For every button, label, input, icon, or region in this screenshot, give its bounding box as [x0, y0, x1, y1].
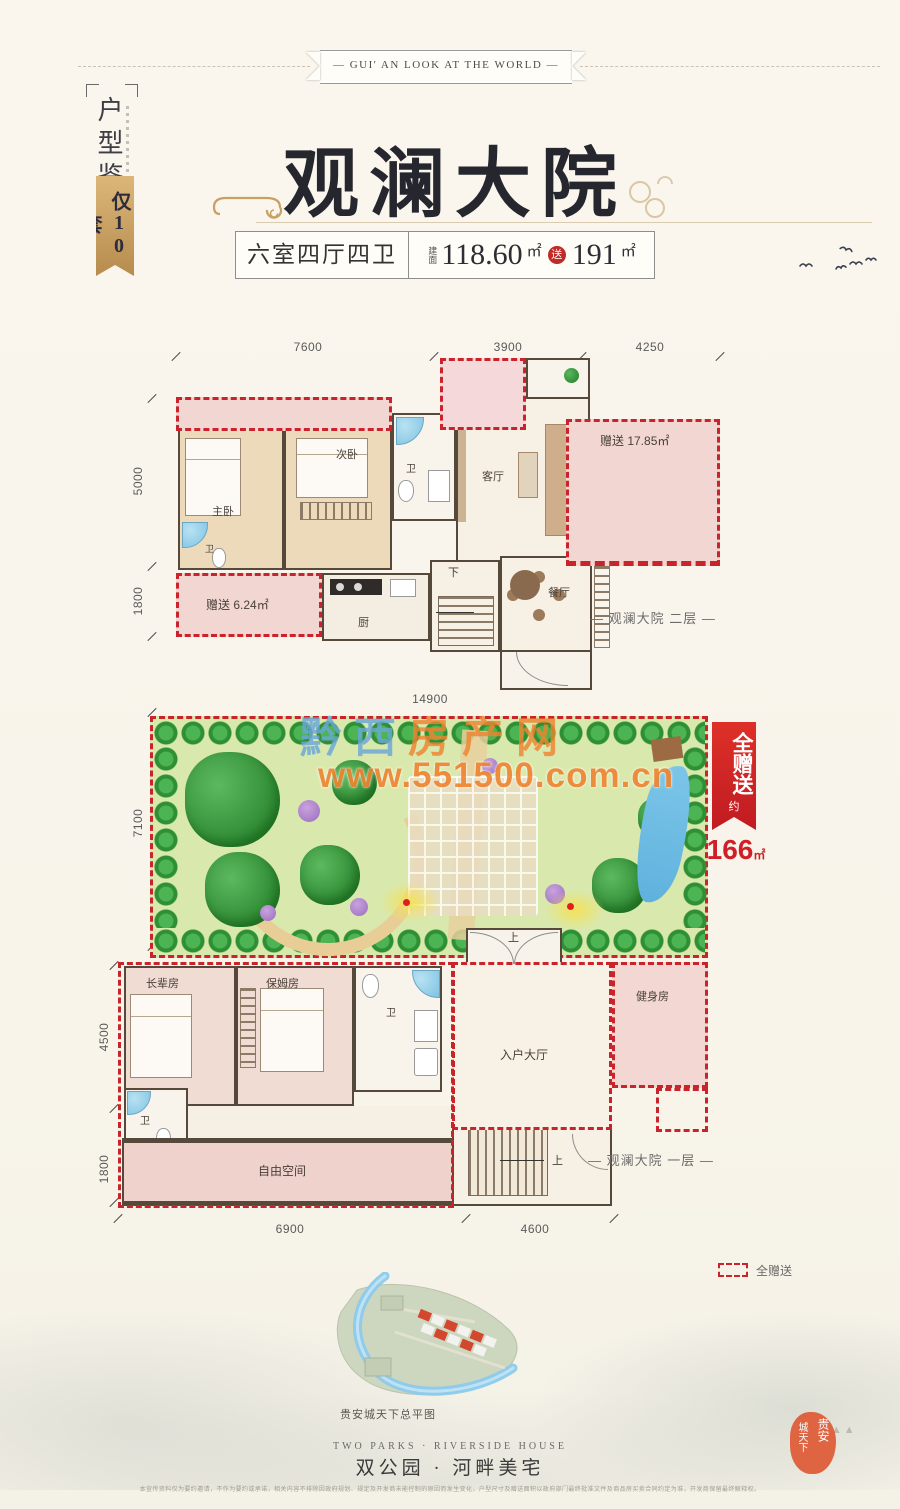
room-label-gym: 健身房: [636, 988, 669, 1004]
page-title: 观澜大院: [270, 122, 640, 232]
tree-cluster: [185, 752, 280, 847]
room-label-second: 次卧: [336, 446, 358, 462]
room-label-bath-b: 卫: [205, 542, 214, 555]
area-line: 建面 118.60 ㎡ 送 191 ㎡: [409, 238, 654, 272]
full-gift-ribbon: 全赠送 约: [712, 722, 756, 830]
floor2-balcony-gift: [440, 358, 526, 430]
room-label-nanny: 保姆房: [266, 975, 299, 991]
legend-gift-label: 全赠送: [756, 1262, 792, 1279]
area-value: 118.60: [441, 238, 522, 272]
gift-circle-icon: 送: [548, 246, 566, 264]
limited-badge: 仅10套: [96, 176, 134, 276]
seal-text-left: 城天下: [796, 1422, 807, 1452]
dim-4600: 4600: [495, 1222, 575, 1236]
stairs-up-label: 上: [552, 1152, 563, 1168]
stairs-label-down: 下: [448, 564, 459, 580]
sink-icon: [390, 579, 416, 597]
garden-tree-row-bottom: [153, 928, 705, 954]
sink-icon: [428, 470, 450, 502]
dim-5000: 5000: [131, 459, 145, 503]
banner-text: — GUI' AN LOOK AT THE WORLD —: [320, 59, 572, 71]
coffee-table-icon: [518, 452, 538, 498]
floor1-gift-step: [656, 1088, 708, 1132]
dim-1800-f2: 1800: [131, 579, 145, 623]
gift-area-value: 191: [572, 238, 617, 272]
gift-label-left: 赠送 6.24㎡: [206, 596, 269, 613]
floor1-gym: [612, 962, 708, 1088]
room-label-master: 主卧: [212, 503, 234, 519]
floor2-dining: [500, 556, 592, 652]
area-label: 建面: [427, 246, 437, 264]
full-gift-value-line: 166㎡: [706, 834, 766, 866]
room-label-kitchen: 厨: [358, 614, 369, 630]
cloud-ornament-icon: [624, 172, 676, 220]
flower-bed: [380, 882, 440, 922]
plant-icon: [564, 368, 579, 383]
toilet-icon: [212, 548, 226, 568]
dim-4500: 4500: [97, 1015, 111, 1059]
room-label-bath2: 卫: [140, 1112, 150, 1127]
room-label-hall: 入户大厅: [500, 1046, 548, 1063]
dim-6900: 6900: [250, 1222, 330, 1236]
tv-wall: [458, 430, 466, 522]
slogan-cn: 双公园 · 河畔美宅: [270, 1453, 630, 1480]
dim-1800-f1: 1800: [97, 1147, 111, 1191]
flower-bed: [545, 890, 605, 930]
ribbon-tail-right: [572, 52, 586, 80]
floor2-gift-bay: [176, 397, 392, 431]
banner-dash-left: [78, 66, 310, 67]
room-label-elder: 长辈房: [146, 975, 179, 991]
room-label-free: 自由空间: [258, 1162, 306, 1179]
room-label-dining: 餐厅: [548, 584, 570, 600]
full-gift-approx: 约: [712, 798, 756, 814]
stair-treads: [468, 1128, 548, 1196]
toilet-icon: [398, 480, 414, 502]
site-plan-map: [325, 1272, 540, 1422]
spec-box: 六室四厅四卫 建面 118.60 ㎡ 送 191 ㎡: [235, 231, 655, 279]
poster-root: — GUI' AN LOOK AT THE WORLD — 户型鉴赏 仅10套 …: [0, 0, 900, 1509]
watermark-url: www.551500.com.cn: [318, 756, 674, 796]
title-underline: [256, 222, 872, 223]
room-spec: 六室四厅四卫: [236, 232, 409, 278]
floor1-caption: — 观澜大院 一层 —: [588, 1150, 728, 1169]
stairs-up-label-entry: 上: [508, 929, 519, 945]
stove-icon: [330, 579, 382, 595]
slogan-en: TWO PARKS · RIVERSIDE HOUSE: [270, 1441, 630, 1452]
dim-7100: 7100: [131, 801, 145, 845]
full-gift-unit: ㎡: [753, 848, 765, 862]
brand-seal: 贵安 城天下: [790, 1412, 836, 1474]
birds-icon: [792, 238, 884, 284]
flower-dot: [567, 903, 574, 910]
full-gift-value: 166: [707, 834, 754, 865]
site-plan-caption: 贵安城天下总平图: [340, 1406, 436, 1422]
dim-7600: 7600: [268, 340, 348, 354]
garden-tree-col-left: [153, 746, 179, 928]
room-label-bath-a: 卫: [406, 460, 416, 475]
full-gift-text: 全赠送: [712, 730, 756, 796]
wardrobe-icon: [300, 502, 372, 520]
disclaimer-text: 本宣传资料仅为要约邀请，不作为要约或承诺，相关内容不排除因政府规划、规定及开发商…: [70, 1484, 830, 1493]
limited-badge-text: 仅10套: [96, 184, 134, 264]
dining-table-icon: [510, 570, 540, 600]
dim-4250: 4250: [610, 340, 690, 354]
radiator-icon: [594, 566, 610, 648]
gift-area-unit: ㎡: [621, 240, 636, 261]
dim-3900: 3900: [468, 340, 548, 354]
gift-label-right: 赠送 17.85㎡: [600, 432, 669, 449]
legend-gift-swatch: [718, 1263, 748, 1277]
floor2-caption: — 观澜大院 二层 —: [590, 608, 730, 627]
ribbon-tail-left: [306, 52, 320, 80]
tree-cluster: [300, 845, 360, 905]
stair-arrow: [436, 612, 474, 613]
room-label-bath1: 卫: [386, 1004, 396, 1019]
flower-dot: [403, 899, 410, 906]
room-label-living: 客厅: [482, 468, 504, 484]
banner-ribbon: — GUI' AN LOOK AT THE WORLD —: [306, 50, 586, 84]
stair-arrow: [500, 1160, 544, 1161]
seal-text-right: 贵安: [817, 1418, 829, 1442]
banner-dash-right: [580, 66, 880, 67]
stair-treads: [438, 596, 494, 646]
area-unit: ㎡: [527, 240, 542, 261]
